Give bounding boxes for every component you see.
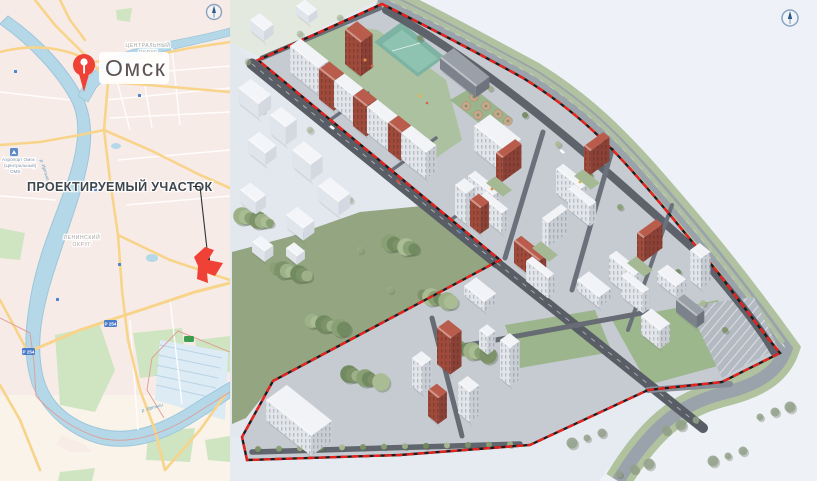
masterplan-presentation: Р 254 Р 254 Аэропорт Омск (Центральный) …: [0, 0, 817, 481]
road-badge-2: Р 254: [104, 320, 117, 327]
airport-line2: (Центральный): [4, 162, 37, 168]
airport-line3: OMS: [10, 169, 20, 174]
city-label[interactable]: Омск: [105, 55, 166, 81]
road-badge-2-label: Р 254: [104, 322, 116, 327]
road-badge-1: Р 254: [22, 348, 35, 355]
render-compass-icon[interactable]: [782, 10, 798, 26]
central-district-label-1: ЦЕНТРАЛЬНЫЙ: [126, 41, 171, 49]
map-compass-icon[interactable]: [207, 5, 222, 20]
city-map-panel: Р 254 Р 254 Аэропорт Омск (Центральный) …: [0, 0, 230, 481]
site-callout-label: ПРОЕКТИРУЕМЫЙ УЧАСТОК: [27, 179, 212, 194]
airport-line1: Аэропорт Омск: [2, 157, 36, 162]
masterplan-render: [230, 0, 817, 481]
masterplan-render-panel: [230, 0, 817, 481]
leninsky-district-label-2: ОКРУГ: [73, 242, 92, 248]
city-map: Р 254 Р 254 Аэропорт Омск (Центральный) …: [0, 0, 230, 481]
leninsky-district-label-1: ЛЕНИНСКИЙ: [64, 233, 101, 241]
road-badge-1-label: Р 254: [22, 350, 34, 355]
road-badge-green: [184, 336, 194, 342]
